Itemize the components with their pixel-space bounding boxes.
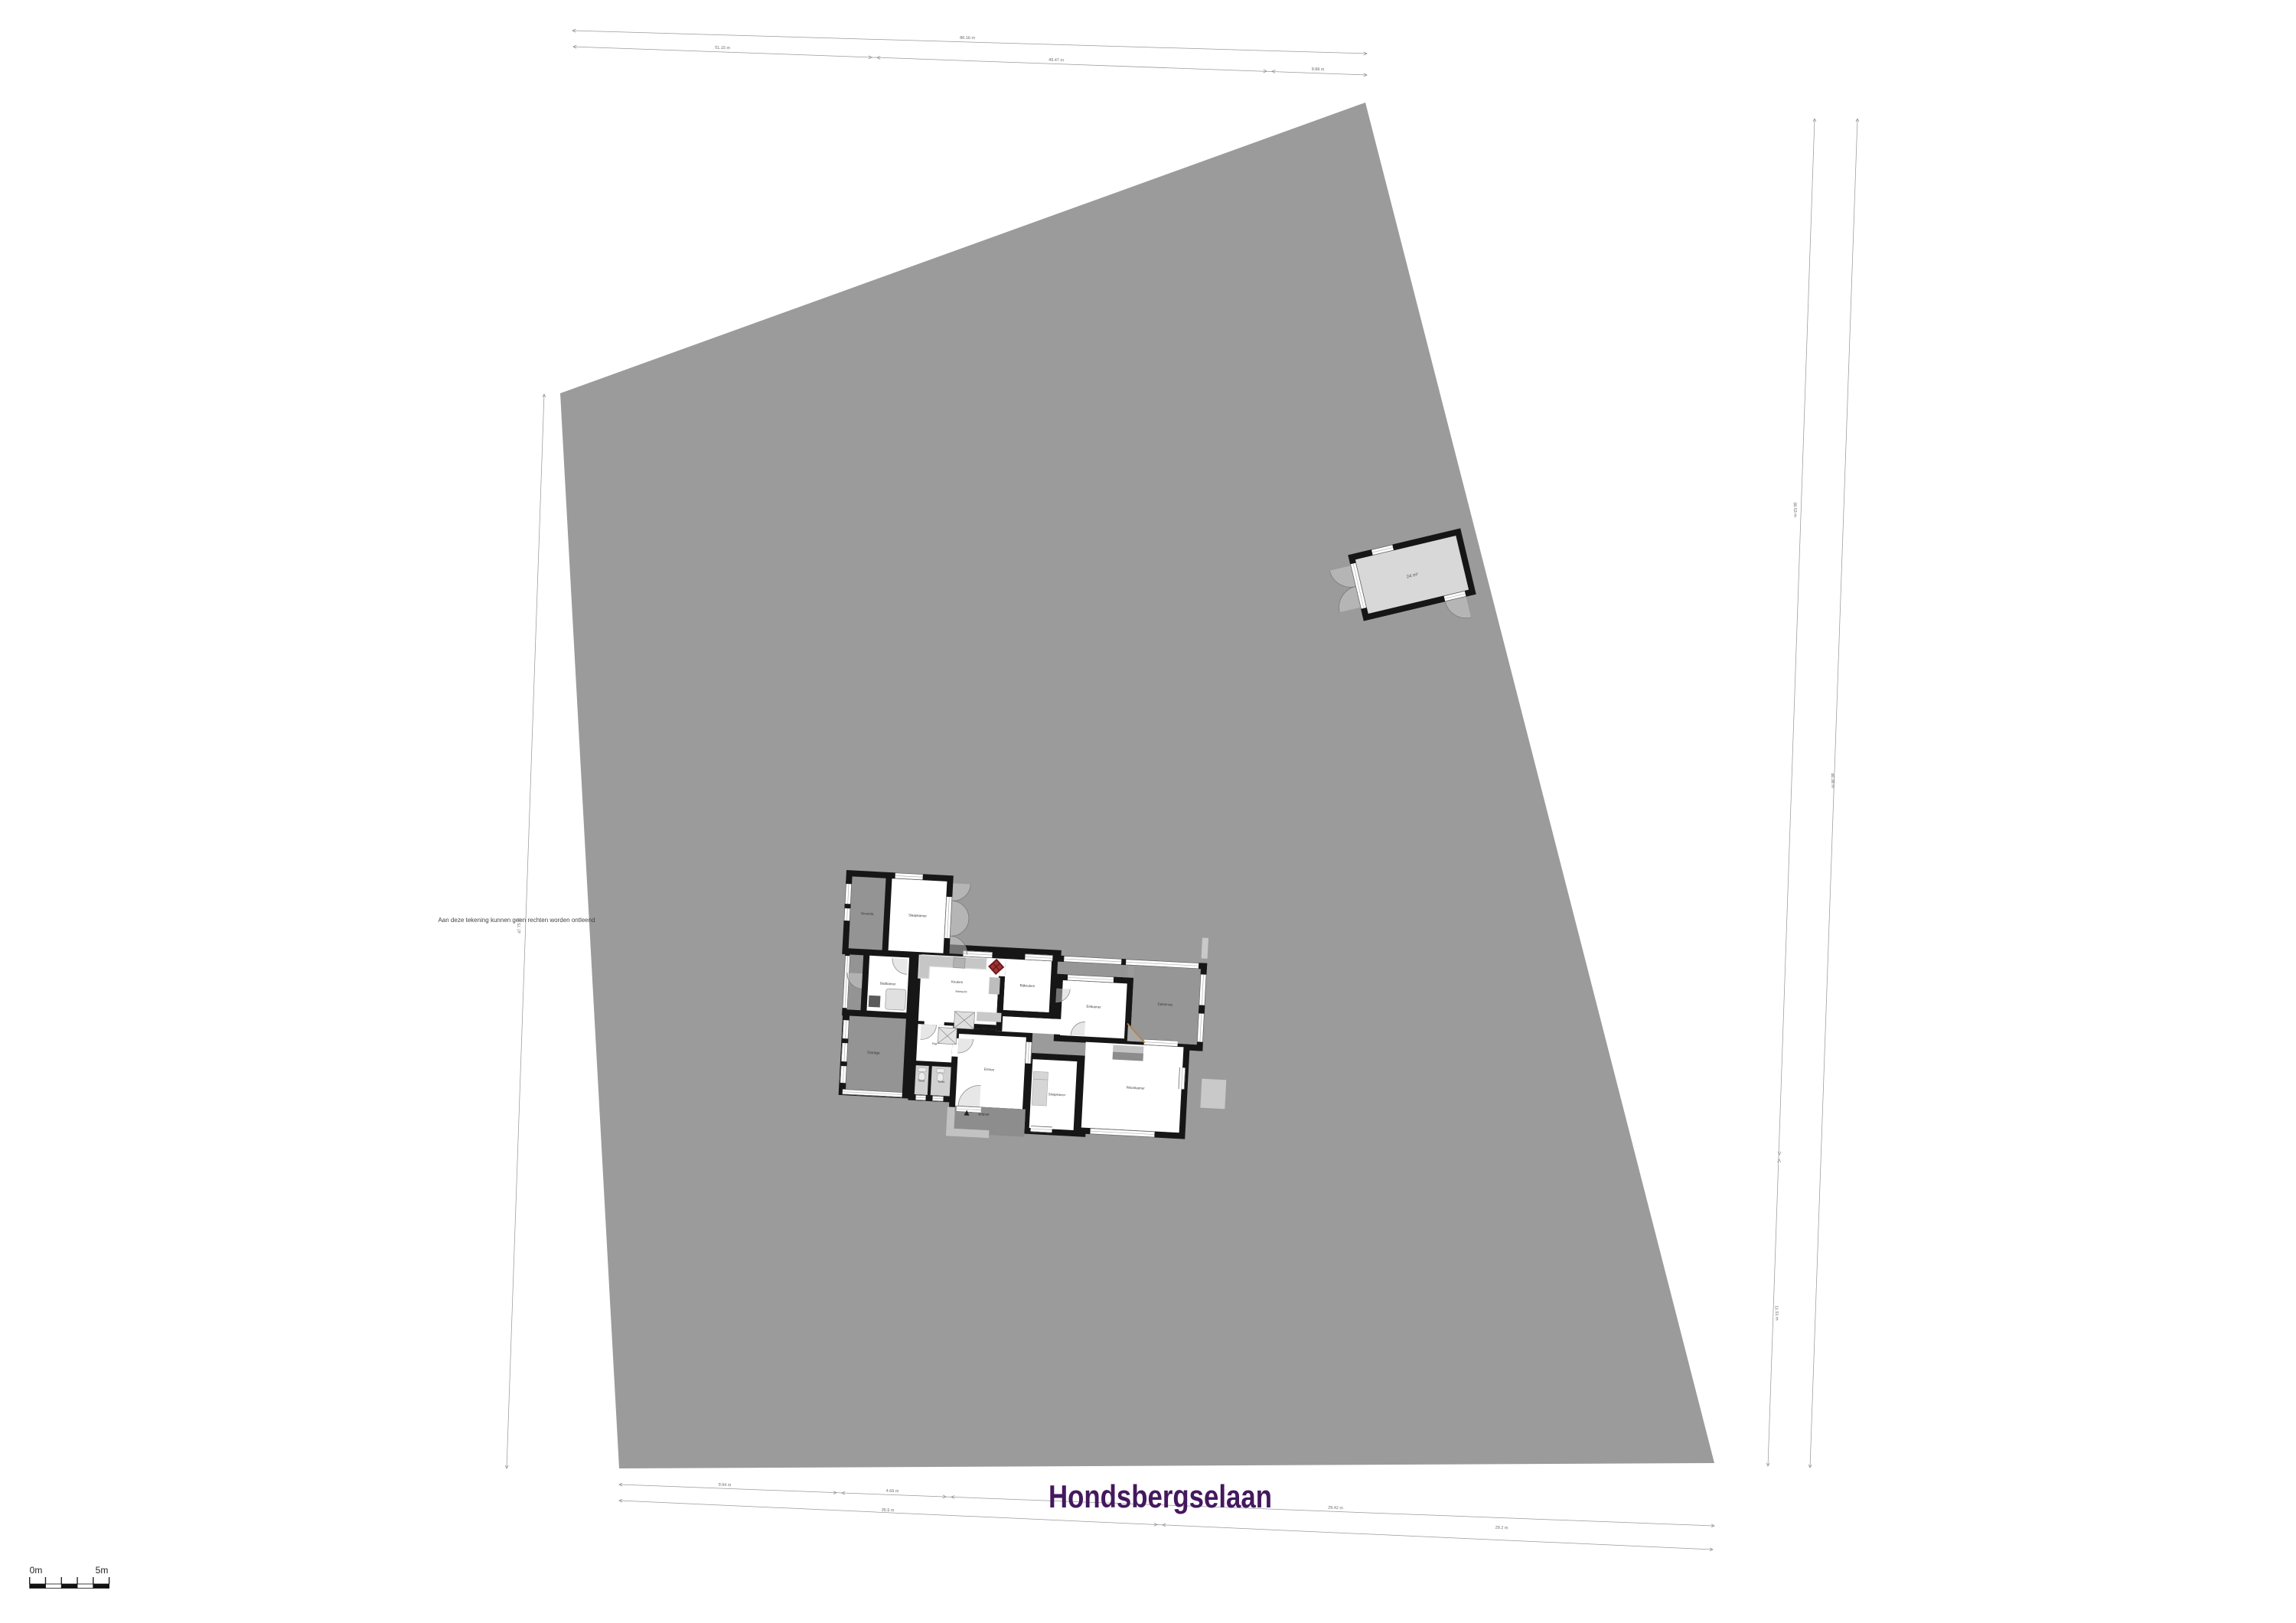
svg-text:86.16 m: 86.16 m <box>960 36 975 41</box>
svg-text:35.5 m: 35.5 m <box>882 1508 895 1514</box>
svg-text:0m: 0m <box>30 1565 43 1576</box>
svg-text:Toilet: Toilet <box>938 1080 945 1084</box>
svg-text:11.51 m: 11.51 m <box>1774 1305 1779 1321</box>
svg-text:51.15 m: 51.15 m <box>715 46 730 51</box>
svg-text:4.66 m: 4.66 m <box>886 1489 899 1494</box>
svg-text:Hal: Hal <box>932 1041 938 1045</box>
svg-text:Keuken: Keuken <box>951 979 964 984</box>
svg-text:38.53 m: 38.53 m <box>1792 502 1798 517</box>
svg-text:Aanrecht: Aanrecht <box>955 990 967 994</box>
svg-text:9.94 m: 9.94 m <box>719 1483 732 1488</box>
svg-text:Garage: Garage <box>867 1051 880 1056</box>
svg-text:entree: entree <box>978 1112 990 1117</box>
svg-text:29.2 m: 29.2 m <box>1495 1526 1508 1531</box>
svg-text:Entree: Entree <box>984 1067 995 1072</box>
svg-text:Dakterras: Dakterras <box>1158 1002 1173 1007</box>
svg-text:46.38 m: 46.38 m <box>1830 773 1835 788</box>
svg-text:5m: 5m <box>96 1565 109 1576</box>
svg-text:49.47 m: 49.47 m <box>1049 58 1064 64</box>
svg-text:Bijkeuken: Bijkeuken <box>1020 983 1035 988</box>
svg-text:Hondsbergselaan: Hondsbergselaan <box>1049 1478 1272 1514</box>
svg-text:Aan deze tekening kunnen geen: Aan deze tekening kunnen geen rechten wo… <box>438 917 595 924</box>
svg-text:Veranda: Veranda <box>861 911 875 916</box>
svg-text:29.42 m: 29.42 m <box>1328 1506 1344 1511</box>
svg-text:Eetkamer: Eetkamer <box>1086 1005 1101 1009</box>
svg-text:9.88 m: 9.88 m <box>1312 67 1325 73</box>
svg-text:Toilet: Toilet <box>918 1079 925 1083</box>
